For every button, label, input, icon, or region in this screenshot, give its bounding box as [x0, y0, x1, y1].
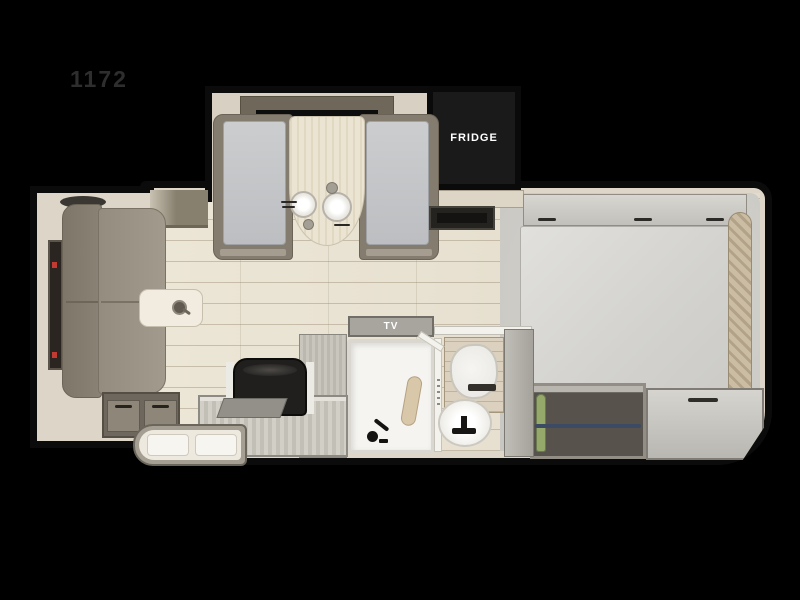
dinette-bench-left [213, 114, 293, 260]
bench-cushion [223, 121, 286, 245]
showerhead-icon [367, 431, 378, 442]
drawer [107, 400, 140, 432]
bowl-icon [303, 219, 314, 230]
shower-stall [347, 339, 435, 454]
counter-trim [306, 362, 314, 414]
window-latch-icon [52, 262, 57, 268]
microwave-vent [429, 206, 495, 230]
cabinet-handle-icon [706, 218, 724, 221]
bathroom-side-cabinet [504, 329, 534, 457]
shower-drain-icon [379, 439, 388, 443]
window-latch-icon [52, 352, 57, 358]
dinette-bench-right [359, 114, 439, 260]
fridge-label: FRIDGE [450, 132, 498, 144]
cutlery-icon [282, 206, 295, 208]
closet-rod-icon [535, 424, 641, 428]
wardrobe-closet [530, 383, 646, 459]
cutlery-icon [281, 201, 297, 203]
cabinet-handle-icon [538, 218, 556, 221]
dinette-table [289, 116, 365, 246]
floor-vent-icon [468, 384, 496, 391]
floorplan-canvas: 1172 FRIDGE [0, 0, 800, 600]
cabinet-handle-icon [634, 218, 652, 221]
bowl-icon [326, 182, 338, 194]
clothes-hanger-green [536, 394, 546, 452]
bed-mattress [520, 226, 734, 396]
refrigerator: FRIDGE [427, 86, 521, 190]
stove-front-panel [216, 398, 287, 418]
headboard-cabinet [523, 194, 747, 226]
plate-icon [290, 191, 317, 218]
showerhead-arm-icon [374, 418, 390, 432]
bench-cushion [366, 121, 429, 245]
closet-rail [533, 386, 643, 393]
side-table [139, 289, 203, 327]
dresser [646, 388, 764, 460]
entry-steps [133, 424, 247, 466]
step-tread [195, 434, 237, 456]
sofa-window [48, 240, 63, 370]
faucet-icon [461, 416, 467, 430]
cutlery-icon [334, 224, 350, 226]
model-number-label: 1172 [70, 66, 128, 93]
plate-icon [322, 192, 352, 222]
tv-label: TV [384, 321, 399, 332]
sofa-back-cushions [62, 204, 102, 398]
step-tread [147, 434, 189, 456]
